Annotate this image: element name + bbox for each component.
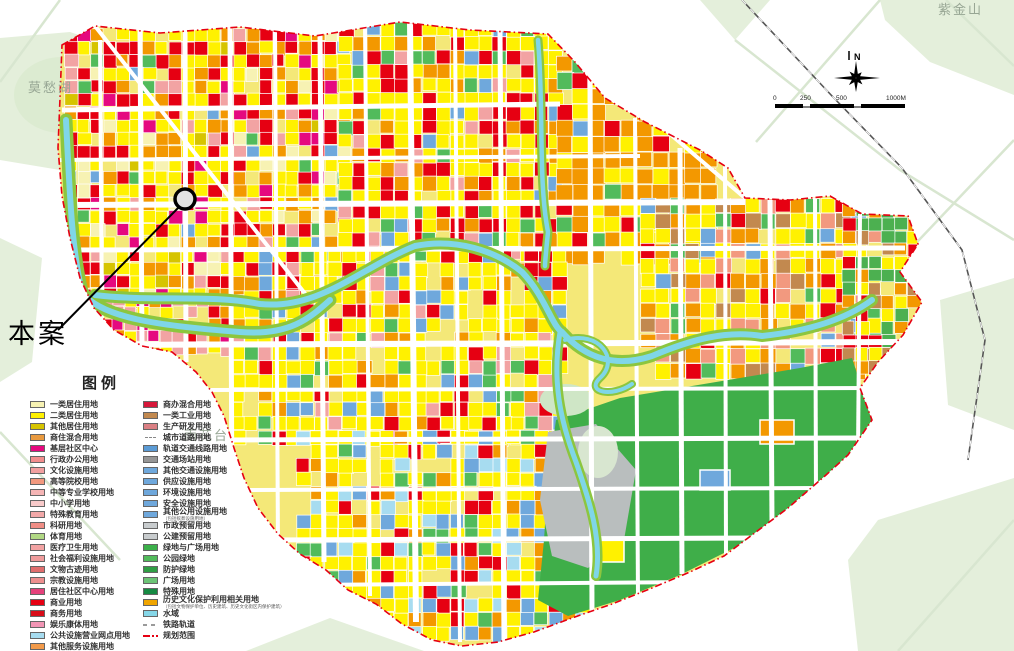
color-swatch: [143, 478, 158, 486]
color-swatch: [30, 500, 45, 508]
legend-title: 图例: [30, 372, 352, 393]
color-swatch: [143, 566, 158, 574]
legend-item: 一类工业用地: [143, 410, 285, 421]
color-swatch: [143, 423, 158, 431]
color-swatch: [30, 401, 45, 409]
legend-item-label: 居住社区中心用地: [50, 588, 114, 596]
legend-item-label: 二类居住用地: [50, 412, 98, 420]
legend-item: 市政预留用地: [143, 520, 285, 531]
legend-item-label: 一类居住用地: [50, 401, 98, 409]
legend-item: 公建预留用地: [143, 531, 285, 542]
color-swatch: [143, 610, 158, 618]
legend-item: 其他服务设施用地: [30, 641, 130, 651]
color-swatch: [30, 544, 45, 552]
label-mochou-lake: 莫愁湖: [28, 80, 73, 95]
site-marker: [175, 189, 195, 209]
legend-item-label: 铁路轨道: [163, 621, 195, 629]
color-swatch: [30, 423, 45, 431]
legend-item-label: 科研用地: [50, 522, 82, 530]
legend-column-right: 商办混合用地一类工业用地生产研发用地城市道路用地轨道交通线路用地交通场站用地其他…: [143, 399, 285, 651]
site-label: 本案: [8, 319, 68, 349]
legend-item-label: 特殊教育用地: [50, 511, 98, 519]
legend-item: 中等专业学校用地: [30, 487, 130, 498]
legend-item: 商业用地: [30, 597, 130, 608]
legend-item-label: 商务用地: [50, 610, 82, 618]
color-swatch: [143, 500, 158, 508]
legend-item: 高等院校用地: [30, 476, 130, 487]
legend-item: 公共设施营业网点用地: [30, 630, 130, 641]
legend-item: 行政办公用地: [30, 454, 130, 465]
legend-item-label: 中等专业学校用地: [50, 489, 114, 497]
color-swatch: [143, 533, 158, 541]
scale-tick: 250: [800, 95, 811, 102]
legend-item-label: 交通场站用地: [163, 456, 211, 464]
legend-item: 供应设施用地: [143, 476, 285, 487]
legend-item-label: 基层社区中心: [50, 445, 98, 453]
color-swatch: [30, 434, 45, 442]
legend-item: 体育用地: [30, 531, 130, 542]
color-swatch: [30, 610, 45, 618]
legend-item-label: 高等院校用地: [50, 478, 98, 486]
color-swatch: [143, 588, 158, 596]
color-swatch: [30, 566, 45, 574]
color-swatch: [30, 599, 45, 607]
color-swatch: [143, 401, 158, 409]
legend-item: 交通场站用地: [143, 454, 285, 465]
legend-item-label: 中小学用地: [50, 500, 90, 508]
legend-item-label: 绿地与广场用地: [163, 544, 219, 552]
legend-item-label: 体育用地: [50, 533, 82, 541]
legend-item: 防护绿地: [143, 564, 285, 575]
legend-item-label: 其他居住用地: [50, 423, 98, 431]
color-swatch: [30, 632, 45, 640]
north-label: N: [854, 52, 861, 62]
legend-item: 居住社区中心用地: [30, 586, 130, 597]
legend-item: 基层社区中心: [30, 443, 130, 454]
color-swatch: [30, 412, 45, 420]
color-swatch: [30, 588, 45, 596]
rail-symbol: [143, 624, 158, 626]
color-swatch: [143, 577, 158, 585]
legend-item-label: 生产研发用地: [163, 423, 211, 431]
legend-item: 生产研发用地: [143, 421, 285, 432]
legend-item: 公园绿地: [143, 553, 285, 564]
color-swatch: [143, 522, 158, 530]
legend-item-label: 水域: [163, 610, 179, 618]
color-swatch: [143, 511, 158, 519]
color-swatch: [143, 599, 158, 607]
legend-item-label: 公园绿地: [163, 555, 195, 563]
legend-item: 环境设施用地: [143, 487, 285, 498]
legend-item: 铁路轨道: [143, 619, 285, 630]
legend-item-label: 文物古迹用地: [50, 566, 98, 574]
color-swatch: [30, 511, 45, 519]
legend-item-label: 娱乐康体用地: [50, 621, 98, 629]
legend-item: 其他居住用地: [30, 421, 130, 432]
label-zijinshan: 紫金山: [938, 2, 983, 17]
legend-item: 广场用地: [143, 575, 285, 586]
legend-item: 水域: [143, 608, 285, 619]
legend-item-label: 其他服务设施用地: [50, 643, 114, 651]
legend-item: 其他公用设施用地（包括殡葬设施用地）: [143, 509, 285, 520]
scale-tick: 0: [773, 95, 777, 102]
legend-item: 文化设施用地: [30, 465, 130, 476]
legend-item-label: 广场用地: [163, 577, 195, 585]
legend-item: 轨道交通线路用地: [143, 443, 285, 454]
legend-item: 商住混合用地: [30, 432, 130, 443]
legend-item: 特殊教育用地: [30, 509, 130, 520]
color-swatch: [143, 489, 158, 497]
north-arrow-icon: N: [834, 51, 880, 92]
color-swatch: [143, 445, 158, 453]
color-swatch: [30, 467, 45, 475]
legend-item-label: 商办混合用地: [163, 401, 211, 409]
legend-item: 一类居住用地: [30, 399, 130, 410]
legend-item-label: 规划范围: [163, 632, 195, 640]
legend-item: 宗教设施用地: [30, 575, 130, 586]
legend-item-label: 供应设施用地: [163, 478, 211, 486]
scale-tick: 1000M: [886, 95, 906, 102]
legend-item-label: 环境设施用地: [163, 489, 211, 497]
color-swatch: [143, 467, 158, 475]
legend-item-label: 社会福利设施用地: [50, 555, 114, 563]
color-swatch: [30, 533, 45, 541]
color-swatch: [30, 478, 45, 486]
legend-item-label: 行政办公用地: [50, 456, 98, 464]
legend-item-label: 宗教设施用地: [50, 577, 98, 585]
color-swatch: [30, 577, 45, 585]
legend-item-label: 防护绿地: [163, 566, 195, 574]
legend-item-label: 医疗卫生用地: [50, 544, 98, 552]
legend-item: 商办混合用地: [143, 399, 285, 410]
legend-item-label: 城市道路用地: [163, 434, 211, 442]
scale-tick: 500: [836, 95, 847, 102]
boundary-symbol: [143, 635, 158, 637]
color-swatch: [30, 456, 45, 464]
legend-item: 医疗卫生用地: [30, 542, 130, 553]
legend-item: 社会福利设施用地: [30, 553, 130, 564]
legend-item: 娱乐康体用地: [30, 619, 130, 630]
color-swatch: [143, 555, 158, 563]
legend-item: 二类居住用地: [30, 410, 130, 421]
legend-item-label: 商住混合用地: [50, 434, 98, 442]
color-swatch: [30, 522, 45, 530]
color-swatch: [30, 643, 45, 651]
legend-item: 城市道路用地: [143, 432, 285, 443]
color-swatch: [30, 621, 45, 629]
legend-item: 其他交通设施用地: [143, 465, 285, 476]
legend-item: 商务用地: [30, 608, 130, 619]
legend-item-label: 文化设施用地: [50, 467, 98, 475]
legend-item: 科研用地: [30, 520, 130, 531]
color-swatch: [143, 544, 158, 552]
legend-item: 历史文化保护利用相关用地（包括文物保护单位、历史建筑、历史文化街区内保护建筑）: [143, 597, 285, 608]
legend-item: 绿地与广场用地: [143, 542, 285, 553]
planning-map-page: 本案 莫愁湖 雨花台 紫金山 N 0 250 500 1000M 图例 一类居住…: [0, 0, 1014, 651]
legend-item-label: 其他交通设施用地: [163, 467, 227, 475]
road-symbol: [143, 434, 158, 442]
legend-item-label: 市政预留用地: [163, 522, 211, 530]
legend-item-label: 公建预留用地: [163, 533, 211, 541]
legend-item-label: 公共设施营业网点用地: [50, 632, 130, 640]
legend-item: 文物古迹用地: [30, 564, 130, 575]
legend: 图例 一类居住用地二类居住用地其他居住用地商住混合用地基层社区中心行政办公用地文…: [30, 372, 352, 651]
color-swatch: [143, 412, 158, 420]
color-swatch: [30, 445, 45, 453]
legend-item: 规划范围: [143, 630, 285, 641]
legend-item: 中小学用地: [30, 498, 130, 509]
legend-item-label: 一类工业用地: [163, 412, 211, 420]
legend-column-left: 一类居住用地二类居住用地其他居住用地商住混合用地基层社区中心行政办公用地文化设施…: [30, 399, 130, 651]
legend-item-label: 商业用地: [50, 599, 82, 607]
legend-item-label: 轨道交通线路用地: [163, 445, 227, 453]
color-swatch: [30, 489, 45, 497]
color-swatch: [30, 555, 45, 563]
color-swatch: [143, 456, 158, 464]
